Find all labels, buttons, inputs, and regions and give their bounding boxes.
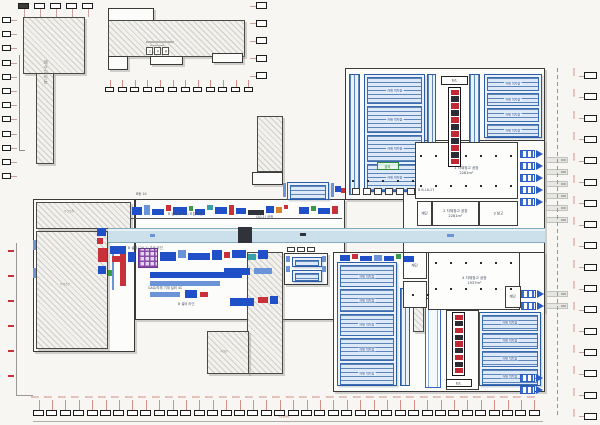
dim-leader — [173, 80, 174, 87]
dim-leader — [11, 148, 17, 149]
hatched-building — [108, 20, 245, 57]
dim-leader — [213, 400, 214, 410]
dim-label: 8000 — [205, 396, 213, 399]
dim-leader — [280, 400, 281, 410]
dim-leader — [579, 289, 584, 290]
callout-box — [584, 349, 597, 356]
dim-leader — [579, 352, 584, 353]
callout-box — [489, 410, 500, 416]
dim-label: 8000 — [572, 132, 575, 140]
dim-label: 8000 — [572, 175, 575, 183]
dim-leader — [579, 161, 584, 162]
text-label: 출하 — [385, 164, 391, 169]
rack-group: 자재 적치장 — [367, 106, 422, 133]
callout-box — [256, 20, 267, 27]
machine-block — [132, 207, 142, 215]
text-label: GAD/자체 기계 설비 4C — [148, 287, 182, 290]
callout-box — [155, 87, 164, 92]
machine-block — [146, 41, 174, 43]
callout-box — [73, 410, 84, 416]
machine-block — [276, 207, 282, 213]
callout-box — [127, 410, 138, 416]
dock-module — [520, 374, 535, 382]
machine-block — [236, 208, 246, 214]
dim-leader — [579, 331, 584, 332]
text-label: B 설비 라인 — [178, 303, 195, 306]
dim-leader — [320, 400, 321, 410]
dim-label: 8000 — [473, 396, 481, 399]
room: 계단 — [417, 201, 432, 226]
callout-box — [118, 87, 127, 92]
machine-block — [8, 250, 14, 252]
machine-block — [8, 275, 14, 277]
dim-leader — [11, 63, 17, 64]
room-label-line: 계단 — [412, 263, 419, 268]
callout-box — [381, 410, 392, 416]
machine-block — [396, 188, 404, 195]
dim-leader — [387, 400, 388, 410]
callout-box — [168, 87, 177, 92]
column-dots-row — [435, 288, 515, 290]
rack-group — [295, 273, 319, 281]
callout-box — [301, 410, 312, 416]
callout-box — [2, 45, 11, 51]
callout-box — [194, 410, 205, 416]
dock-module — [520, 150, 535, 158]
rack-group: 자재 적치장 — [487, 108, 539, 122]
elevator-label: E/L — [441, 76, 468, 85]
dim-leader — [79, 400, 80, 410]
dim-leader — [56, 9, 57, 17]
rack-label: 자재 적치장 — [386, 118, 403, 122]
dock-module — [520, 198, 535, 206]
dim-leader — [467, 400, 468, 410]
callout-box — [130, 87, 139, 92]
hatched-building — [207, 331, 249, 374]
dim-leader — [24, 9, 25, 17]
machine-block — [212, 250, 222, 260]
dock-arrow-icon — [536, 386, 547, 394]
rack-group: 자재 적치장 — [340, 265, 394, 287]
code-box: 0 — [154, 47, 161, 55]
machine-block — [200, 292, 208, 297]
machine-block — [150, 45, 164, 46]
dim-label: 8000 — [572, 324, 575, 332]
dim-label: 8000 — [299, 396, 307, 399]
machine-block — [341, 188, 345, 193]
callout-box — [167, 410, 178, 416]
callout-box — [140, 410, 151, 416]
dim-leader — [250, 23, 256, 24]
machine-block — [188, 253, 210, 260]
dim-leader — [579, 139, 584, 140]
machine-block — [144, 205, 150, 215]
rack-group: 자재 적치장 — [340, 338, 394, 360]
machine-block — [98, 266, 106, 274]
ruler-line — [19, 55, 20, 151]
dim-label: 8000 — [572, 345, 575, 353]
dim-leader — [132, 400, 133, 410]
machine-block — [8, 350, 14, 352]
callout-box — [2, 74, 11, 80]
dim-label: 8000 — [500, 396, 508, 399]
machine-block — [185, 290, 197, 298]
machine-block — [363, 188, 371, 195]
dim-label: 8000 — [393, 396, 401, 399]
dim-leader — [250, 76, 256, 77]
machine-block — [385, 188, 393, 195]
callout-box — [2, 131, 11, 137]
text-label: B 설비 (20-1) 가공 라인 — [128, 247, 163, 250]
rack-group: 자재 적치장 — [367, 77, 422, 104]
dim-leader — [307, 400, 308, 410]
callout-box — [475, 410, 486, 416]
rack-label: 자재 적치장 — [386, 147, 403, 151]
ruler-line — [19, 150, 25, 151]
callout-box — [395, 410, 406, 416]
dim-leader — [508, 400, 509, 410]
dim-leader — [266, 400, 267, 410]
dim-label: 8000 — [312, 396, 320, 399]
machine-block — [166, 205, 171, 211]
dim-leader — [39, 400, 40, 410]
dim-leader — [579, 267, 584, 268]
machine-block — [224, 252, 230, 258]
dim-leader — [122, 80, 123, 87]
callout-box — [87, 410, 98, 416]
dim-leader — [248, 80, 249, 87]
callout-box — [584, 200, 597, 207]
building — [252, 172, 283, 185]
dim-label: 8000 — [433, 396, 441, 399]
dim-label: 8000 — [572, 89, 575, 97]
machine-block — [322, 266, 326, 272]
dim-leader — [360, 400, 361, 410]
callout-box — [422, 410, 433, 416]
rack-area — [292, 257, 322, 267]
machine-block — [150, 234, 155, 237]
machine-block — [374, 255, 382, 261]
dim-label: 8000 — [366, 396, 374, 399]
dim-leader — [110, 80, 111, 87]
callout-box — [368, 410, 379, 416]
machine-block — [297, 247, 305, 252]
dim-leader — [414, 400, 415, 410]
text-label: E/L — [456, 381, 461, 385]
dim-leader — [579, 76, 584, 77]
dim-label: 8000 — [572, 217, 575, 225]
callout-box — [448, 410, 459, 416]
machine-block — [128, 252, 135, 262]
dim-leader — [427, 400, 428, 410]
machine-block — [229, 205, 234, 215]
dim-label: 8000 — [572, 153, 575, 161]
dim-label: 8000 — [446, 396, 454, 399]
machine-block — [8, 300, 14, 302]
dim-leader — [223, 80, 224, 87]
callout-box — [584, 221, 597, 228]
machine-block — [331, 183, 334, 197]
callout-box — [288, 410, 299, 416]
callout-box — [584, 285, 597, 292]
text-label: E/L — [452, 78, 457, 82]
dashed-dim-line — [557, 68, 558, 416]
rack-group: 자재 적치장 — [482, 351, 538, 367]
dim-leader — [88, 9, 89, 17]
dim-leader — [293, 400, 294, 410]
machine-block — [352, 254, 358, 259]
room-label-line: 3 창고 — [493, 211, 503, 216]
machine-block — [287, 247, 295, 252]
room-label-line: 계단 — [510, 295, 517, 300]
dim-leader — [579, 395, 584, 396]
dim-label: 8000 — [572, 281, 575, 289]
callout-box — [584, 157, 597, 164]
machine-block — [322, 256, 326, 262]
building — [212, 53, 243, 63]
room-label: 2 자재창고 공장2281m² — [443, 209, 467, 218]
room-label-line: 1937m² — [462, 281, 486, 286]
callout-box — [256, 37, 267, 44]
machine-block — [98, 248, 107, 262]
dim-label: 8000 — [44, 396, 52, 399]
machine-block — [248, 210, 264, 215]
machine-block — [150, 292, 180, 297]
rack-group: 자재 적치장 — [487, 124, 539, 138]
dim-leader — [579, 118, 584, 119]
dim-label: 8000 — [420, 396, 428, 399]
ruler-line — [16, 243, 17, 396]
callout-box — [234, 410, 245, 416]
dim-leader — [147, 80, 148, 87]
text-label: B동 10 — [136, 193, 147, 196]
dim-label: 8000 — [192, 396, 200, 399]
dim-label: 8000 — [125, 396, 133, 399]
text-label: Y-557 — [60, 283, 70, 287]
dim-leader — [11, 105, 17, 106]
machine-block — [248, 254, 256, 260]
callout-box — [515, 410, 526, 416]
callout-box — [584, 328, 597, 335]
rack-area: 자재 적치장자재 적치장자재 적치장자재 적치장자재 적치장 — [337, 262, 397, 386]
callout-box — [2, 173, 11, 179]
dim-leader — [481, 400, 482, 410]
callout-box — [206, 87, 215, 92]
dim-label: 8000 — [572, 196, 575, 204]
callout-box — [2, 31, 11, 37]
machine-block — [160, 252, 176, 261]
callout-box — [584, 115, 597, 122]
elevator-tower — [452, 312, 465, 376]
machine-block — [404, 256, 414, 262]
building — [108, 56, 128, 70]
dim-label: 8000 — [71, 396, 79, 399]
dim-leader — [11, 34, 17, 35]
dim-label: 8000 — [178, 396, 186, 399]
machine-block — [286, 266, 290, 272]
machine-block — [300, 233, 306, 236]
dock-module — [521, 290, 536, 298]
callout-box — [218, 87, 227, 92]
dim-leader — [521, 400, 522, 410]
conveyor-band — [108, 228, 545, 243]
dim-label: 8000 — [138, 396, 146, 399]
callout-box — [143, 87, 152, 92]
dim-leader — [11, 77, 17, 78]
callout-box — [584, 179, 597, 186]
machine-block — [407, 188, 415, 195]
machine-block — [286, 256, 290, 262]
elevator-tower — [448, 87, 461, 167]
rack-label: 자재 적치장 — [504, 128, 521, 132]
dock-module — [521, 302, 536, 310]
dock-module — [520, 162, 535, 170]
machine-block — [311, 206, 316, 211]
dim-leader — [199, 400, 200, 410]
room: 3 창고 — [479, 201, 518, 226]
column-dots-row — [420, 155, 512, 157]
rack-group: 자재 적치장 — [340, 363, 394, 385]
dim-leader — [250, 6, 256, 7]
dim-label: 8000 — [460, 396, 468, 399]
dim-leader — [579, 246, 584, 247]
text-label: B B-18-27 — [418, 189, 434, 192]
callout-box — [341, 410, 352, 416]
conveyor-channel — [425, 298, 441, 388]
dim-leader — [333, 400, 334, 410]
dim-leader — [253, 400, 254, 410]
dim-label: 8000 — [572, 302, 575, 310]
callout-box — [244, 87, 253, 92]
callout-box — [584, 306, 597, 313]
machine-block — [8, 325, 14, 327]
column-dots-row — [420, 185, 512, 187]
callout-box — [2, 116, 11, 122]
machine-block — [332, 206, 338, 214]
room-label-line: 2281m² — [443, 214, 467, 219]
callout-box — [193, 87, 202, 92]
dim-leader — [186, 400, 187, 410]
callout-box — [261, 410, 272, 416]
room-label-line: 2281m² — [454, 171, 478, 176]
callout-box — [584, 242, 597, 249]
rack-label: 자재 적치장 — [358, 372, 375, 376]
callout-box — [2, 102, 11, 108]
floorplan-canvas: 자재 적치장자재 적치장자재 적치장자재 적치장자재 적치장자재 적치장자재 적… — [0, 0, 600, 425]
callout-box — [529, 410, 540, 416]
dim-label: 8000 — [353, 396, 361, 399]
callout-box — [2, 88, 11, 94]
dim-label: 8000 — [152, 396, 160, 399]
dim-label: 8000 — [572, 366, 575, 374]
dim-leader — [52, 400, 53, 410]
dim-label: 8000 — [58, 396, 66, 399]
dim-leader — [11, 91, 17, 92]
machine-block — [207, 205, 213, 210]
machine-block — [230, 298, 254, 306]
callout-box — [105, 87, 114, 92]
rack-label: 자재 적치장 — [358, 274, 375, 278]
rack-group: 자재 적치장 — [482, 333, 538, 349]
machine-block — [152, 209, 164, 215]
dim-label: 8000 — [339, 396, 347, 399]
dim-leader — [92, 400, 93, 410]
rack-group: 자재 적치장 — [487, 93, 539, 107]
machine-block — [110, 246, 126, 254]
dim-leader — [441, 400, 442, 410]
dim-label: 8000 — [111, 396, 119, 399]
dim-leader — [185, 80, 186, 87]
hatched-building — [36, 202, 131, 229]
rack-label: 자재 적치장 — [358, 323, 375, 327]
dim-leader — [374, 400, 375, 410]
building — [150, 56, 183, 65]
callout-box — [584, 72, 597, 79]
callout-box — [256, 55, 267, 62]
dim-leader — [160, 80, 161, 87]
dim-leader — [240, 400, 241, 410]
callout-box — [207, 410, 218, 416]
machine-block — [224, 268, 250, 275]
text-label: Y-555 — [64, 210, 74, 214]
column-dots-row — [352, 180, 422, 182]
dim-leader — [579, 310, 584, 311]
callout-box — [328, 410, 339, 416]
callout-box — [100, 410, 111, 416]
dim-label: 8000 — [31, 396, 39, 399]
text-label: 폐수처리동 — [42, 60, 47, 84]
dim-label: 8000 — [406, 396, 414, 399]
callout-box — [584, 264, 597, 271]
dim-label: 8000 — [572, 68, 575, 76]
machine-block — [254, 268, 272, 274]
hatched-building — [36, 73, 54, 164]
machine-block — [215, 207, 227, 214]
dim-leader — [454, 400, 455, 410]
dim-leader — [347, 400, 348, 410]
room-label: 계단 — [421, 211, 428, 216]
hatched-building — [23, 17, 85, 74]
vertical-rack-channel — [349, 74, 360, 195]
code-box: 2 — [146, 47, 153, 55]
rack-group: 자재 적치장 — [482, 315, 538, 331]
dim-leader — [65, 400, 66, 410]
dim-leader — [72, 9, 73, 17]
callout-box — [584, 93, 597, 100]
machine-block — [284, 205, 288, 209]
machine-block — [178, 250, 186, 258]
rack-label: 자재 적치장 — [358, 348, 375, 352]
callout-box — [584, 392, 597, 399]
machine-block — [307, 247, 315, 252]
callout-box — [502, 410, 513, 416]
callout-box — [584, 413, 597, 420]
dim-leader — [579, 203, 584, 204]
machine-block — [283, 183, 286, 197]
dim-leader — [494, 400, 495, 410]
callout-box — [2, 145, 11, 151]
dim-label: 8000 — [165, 396, 173, 399]
dim-leader — [250, 41, 256, 42]
rack-area — [287, 182, 329, 200]
rack-label: 자재 적치장 — [501, 357, 518, 361]
dim-leader — [579, 225, 584, 226]
callout-box — [584, 136, 597, 143]
callout-box — [2, 17, 11, 23]
ruler-line — [33, 421, 543, 422]
dim-label: 8000 — [232, 396, 240, 399]
dim-leader — [106, 400, 107, 410]
